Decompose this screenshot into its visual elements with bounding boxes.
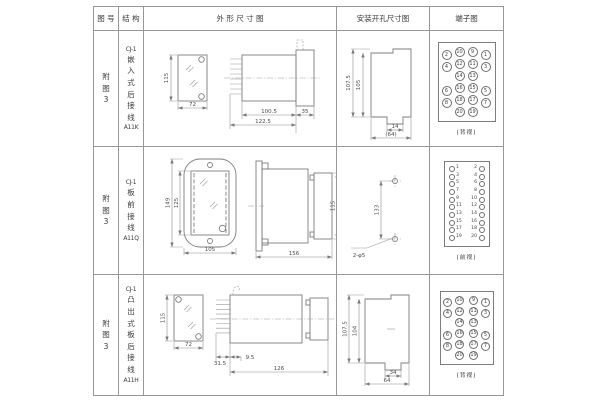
dim-hole-spec: 2-φ5 [353,253,366,259]
col-header-mounting-dims: 安装开孔尺寸图 [337,7,430,31]
structure-model: A11Q [123,235,138,242]
dim-side-length: 156 [289,251,300,257]
dim-side-height: 115 [331,200,337,211]
structure-model: A11H [123,377,138,384]
dim-hole-pitch: 133 [375,204,381,215]
dim-pin-length: 31.5 [214,361,227,367]
dim-mount-outer-h: 107.5 [346,75,352,91]
structure-prefix: CJ-1 [126,179,137,186]
terminal-cell-a11k: 2109141211314136161558181772019 (背视) [430,31,504,147]
col-header-structure: 结 构 [119,7,144,31]
fig-no-label: 附图3 [100,318,112,353]
structure-a11q: CJ-1 板前接线 A11Q [119,147,144,275]
dim-total-length: 126 [274,366,285,372]
dim-total-length: 122.5 [255,119,271,125]
mounting-svg-a11q: 133 2-φ5 [337,147,429,274]
structure-prefix: CJ-1 [126,286,137,293]
terminal-diagram-a11q: 1234567891011121314151617181920 [444,161,490,247]
structure-prefix: CJ-1 [126,46,137,53]
relay-datasheet-page: { "colors": {"ink": "#3a3a3a", "line": "… [0,0,600,400]
dim-mount-inner-h: 104 [353,325,359,336]
terminal-caption: (前视) [456,252,476,261]
structure-a11k: CJ-1 嵌入式后接线 A11K [119,31,144,147]
dim-mount-notch: 34 [390,370,397,376]
terminal-cell-a11q: 1234567891011121314151617181920 (前视) [430,147,504,275]
mounting-drawing-a11h: 107.5 104 34 64 [337,275,430,396]
structure-chars: 板前接线 [125,187,137,234]
dim-front-height: 115 [164,72,170,83]
col-header-outline-dims: 外 形 尺 寸 图 [144,7,337,31]
dim-mount-inner-h: 105 [356,79,362,90]
dim-front-height: 115 [161,312,167,323]
dim-mount-outer-h: 107.5 [343,320,349,336]
outline-svg-a11k: 115 72 100.5 35 122.5 [144,31,336,146]
col-header-terminal: 端子图 [430,7,504,31]
dim-body-length: 100.5 [261,109,277,115]
fig-no-a11h: 附图3 [94,275,119,396]
outline-drawing-a11q: 149 125 105 156 115 [144,147,337,275]
terminal-caption: (背视) [456,370,476,379]
outline-svg-a11h: 115 72 31.5 9.5 126 [144,275,336,396]
terminal-diagram-a11k: 2109141211314136161558181772019 [438,42,496,122]
structure-chars: 凸出式板后接线 [125,294,137,375]
structure-a11h: CJ-1 凸出式板后接线 A11H [119,275,144,396]
outline-svg-a11q: 149 125 105 156 115 [144,147,336,274]
mounting-svg-a11h: 107.5 104 34 64 [337,275,429,396]
dim-front-width: 72 [185,342,192,348]
outline-drawing-a11h: 115 72 31.5 9.5 126 [144,275,337,396]
dim-flange: 35 [302,109,309,115]
spec-table: 图 号 结 构 外 形 尺 寸 图 安装开孔尺寸图 端子图 附图3 CJ-1 嵌… [93,6,504,396]
fig-no-a11q: 附图3 [94,147,119,275]
fig-no-label: 附图3 [100,71,112,106]
outline-drawing-a11k: 115 72 100.5 35 122.5 [144,31,337,147]
dim-mount-notch: 14 [392,124,399,130]
dim-plate-width: 105 [205,247,216,253]
dim-plate-outer-h: 149 [166,197,172,208]
mounting-drawing-a11k: 107.5 105 14 (64) [337,31,430,147]
dim-mount-total-w: 64 [384,378,391,384]
terminal-caption: (背视) [456,127,476,136]
fig-no-a11k: 附图3 [94,31,119,147]
structure-chars: 嵌入式后接线 [125,54,137,124]
dim-offset: 9.5 [246,355,255,361]
dim-plate-inner-h: 125 [174,197,180,208]
mounting-drawing-a11q: 133 2-φ5 [337,147,430,275]
terminal-diagram-a11h: 2109141211314136161558181772019 [440,291,494,365]
structure-model: A11K [124,124,138,131]
dim-mount-total-w: (64) [385,132,396,138]
dim-front-width: 72 [189,102,196,108]
fig-no-label: 附图3 [100,193,112,228]
mounting-svg-a11k: 107.5 105 14 (64) [337,31,429,146]
terminal-cell-a11h: 2109141211314136161558181772019 (背视) [430,275,504,396]
col-header-fig-no: 图 号 [94,7,119,31]
